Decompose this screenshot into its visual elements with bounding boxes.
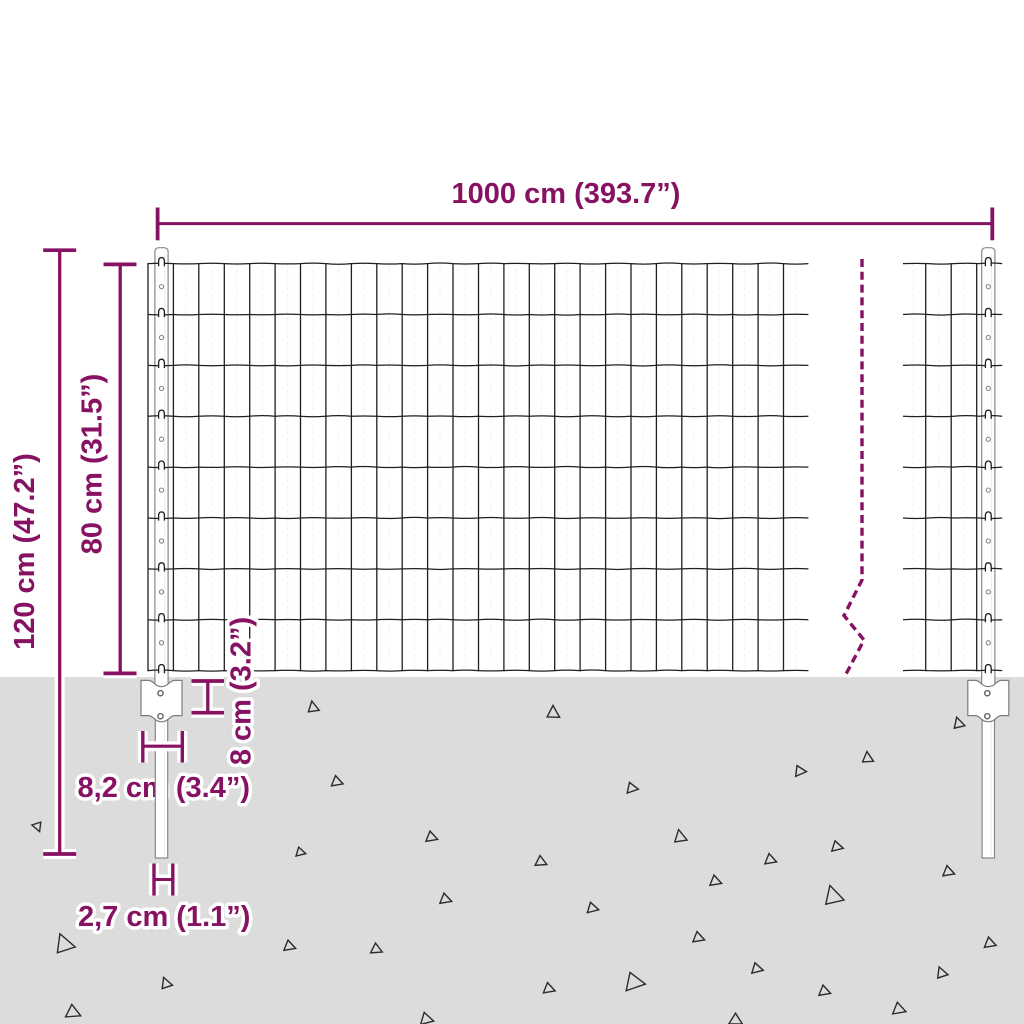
svg-text:1000 cm (393.7”): 1000 cm (393.7”) <box>452 178 681 210</box>
svg-text:8 cm (3.2”): 8 cm (3.2”) <box>226 617 258 765</box>
svg-text:120 cm (47.2”): 120 cm (47.2”) <box>9 453 41 650</box>
svg-text:2,7 cm (1.1”): 2,7 cm (1.1”) <box>78 901 250 933</box>
svg-text:80 cm (31.5”): 80 cm (31.5”) <box>77 374 109 555</box>
